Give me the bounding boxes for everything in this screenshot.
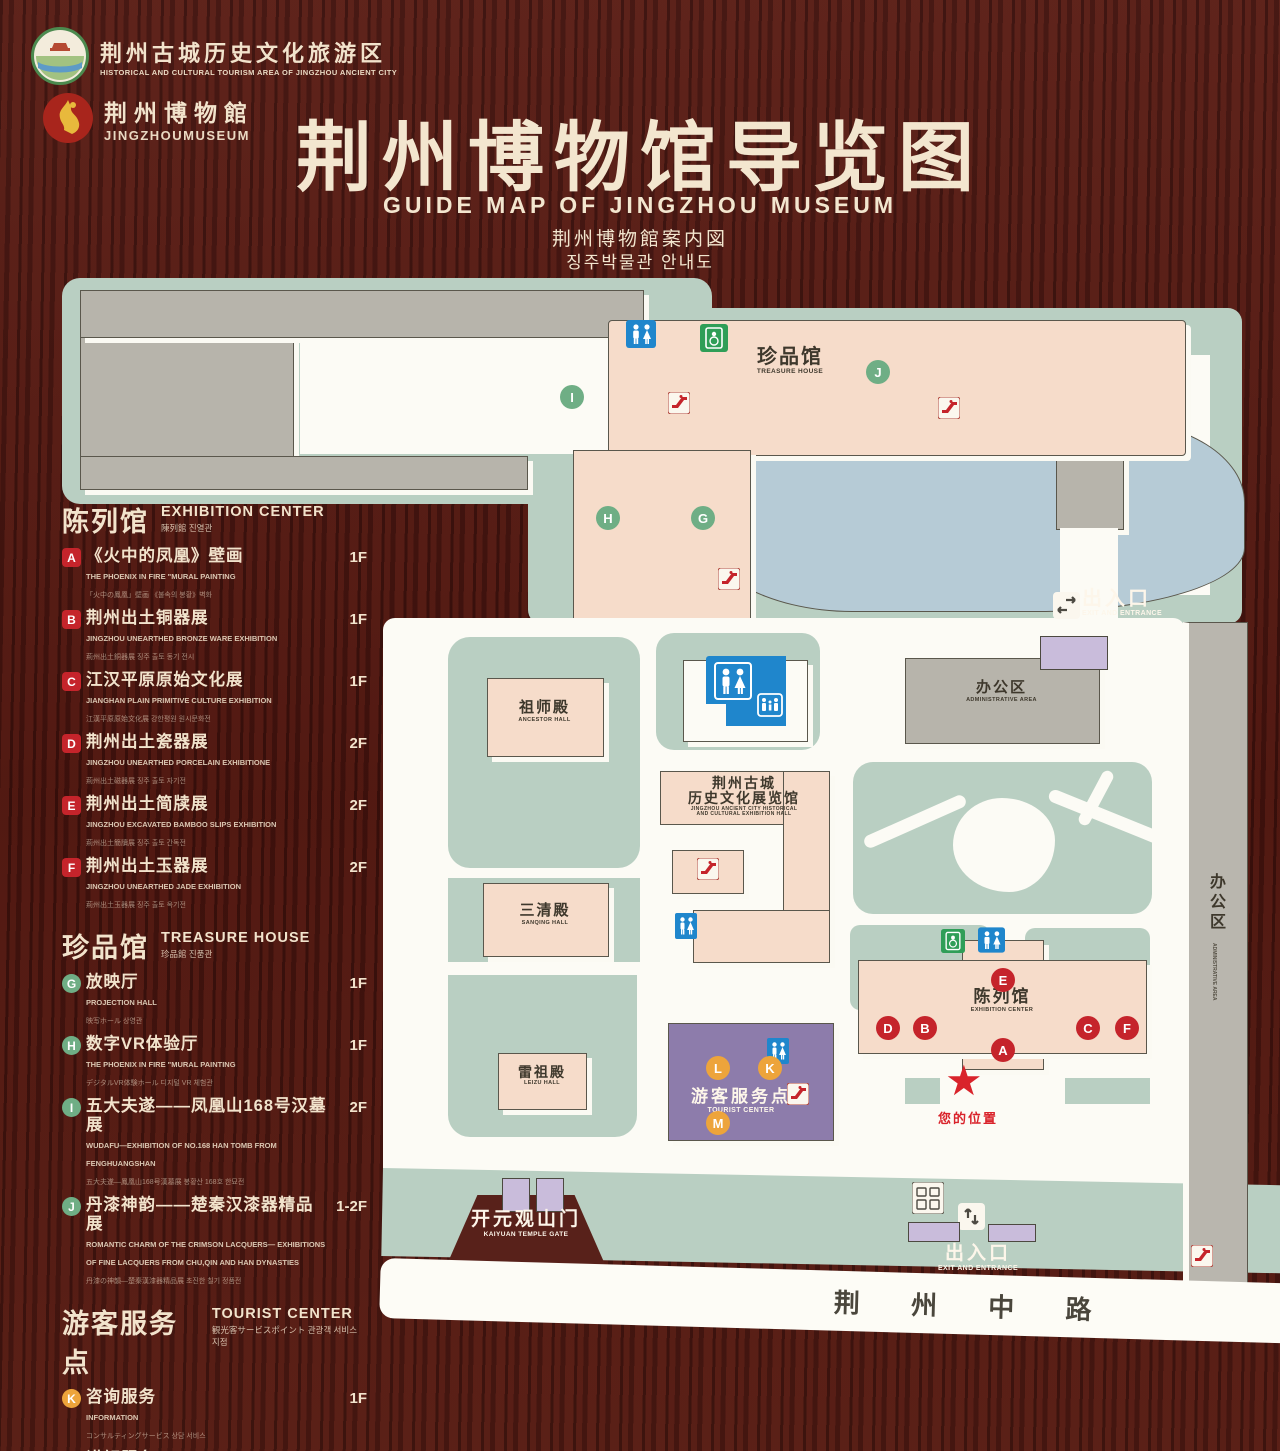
office-building-south-bar — [80, 456, 528, 490]
map-marker-K: K — [758, 1056, 782, 1080]
item-title-sub: デジタルVR体験ホール 디지털 VR 체험관 — [86, 1080, 213, 1087]
list-item: A 《火中的凤凰》壁画 THE PHOENIX IN FIRE "MURAL P… — [62, 547, 367, 602]
item-title-sub: 荊州出土銅器展 징주 출토 동기 전시 — [86, 654, 194, 661]
office-strip-east: 办公区 ADMINISTRATIVE AREA — [1183, 622, 1248, 1304]
map-marker-F: F — [1115, 1016, 1139, 1040]
item-title-en: THE PHOENIX IN FIRE "MURAL PAINTING — [86, 572, 236, 581]
ground-exh-sw — [905, 1078, 940, 1104]
ancestor-hall-label: 祖师殿 ANCESTOR HALL — [487, 700, 602, 723]
exit-entrance-icon — [958, 1203, 985, 1230]
item-title: 《火中的凤凰》壁画 — [86, 547, 244, 565]
map-marker-E: E — [991, 968, 1015, 992]
escalator-icon — [938, 397, 960, 419]
item-title-en: INFORMATION — [86, 1413, 138, 1422]
gate-post — [536, 1178, 564, 1212]
treasure-house-header: 珍品馆 TREASURE HOUSE 珍品館 진품관 — [62, 926, 367, 965]
letter-badge: C — [62, 672, 81, 691]
page-title-en: GUIDE MAP OF JINGZHOU MUSEUM — [0, 192, 1280, 219]
item-title-sub: 五大夫遂—鳳凰山168号漢墓展 봉황산 168호 한묘전 — [86, 1179, 244, 1186]
list-item: B 荆州出土铜器展 JINGZHOU UNEARTHED BRONZE WARE… — [62, 609, 367, 664]
exit-entrance-icon — [1053, 592, 1080, 619]
legend-sidebar: 陈列馆 EXHIBITION CENTER 陳列館 진열관 A 《火中的凤凰》壁… — [62, 500, 367, 1451]
map-marker-L: L — [706, 1056, 730, 1080]
letter-badge: B — [62, 610, 81, 629]
item-title-sub: 荊州出土磁器展 징주 출토 자기전 — [86, 778, 186, 785]
letter-badge: D — [62, 734, 81, 753]
tourist-center-building — [668, 1023, 834, 1141]
floor-label: 1F — [333, 547, 367, 566]
letter-badge: G — [62, 974, 81, 993]
floor-label: 1F — [333, 671, 367, 690]
item-title: 数字VR体验厅 — [86, 1035, 198, 1053]
letter-badge: I — [62, 1098, 81, 1117]
tourism-logo-en: HISTORICAL AND CULTURAL TOURISM AREA OF … — [100, 68, 397, 77]
item-title-en: THE PHOENIX IN FIRE "MURAL PAINTING — [86, 1060, 236, 1069]
restroom-icon — [978, 927, 1005, 953]
office-strip-label: 办公区 — [1203, 873, 1227, 933]
escalator-icon — [718, 568, 740, 590]
item-title-sub: コンサルティングサービス 상담 서비스 — [86, 1433, 206, 1440]
gate-structure — [1040, 636, 1108, 670]
item-title-sub: 江漢平原原始文化展 강한평원 원시문화전 — [86, 716, 211, 723]
item-title: 丹漆神韵——楚秦汉漆器精品展 — [86, 1196, 314, 1233]
escalator-icon — [668, 392, 690, 414]
ground-exh-se — [1065, 1078, 1150, 1104]
item-title: 荆州出土瓷器展 — [86, 733, 209, 751]
item-title-en: PROJECTION HALL — [86, 998, 157, 1007]
letter-badge: E — [62, 796, 81, 815]
item-title-sub: 荊州出土玉器展 징주 출토 옥기전 — [86, 902, 186, 909]
floor-label: 2F — [333, 795, 367, 814]
tourist-center-list: K 咨询服务 INFORMATION コンサルティングサービス 상담 서비스 1… — [62, 1388, 367, 1451]
letter-badge: K — [62, 1389, 81, 1408]
road: 荆 州 中 路 — [379, 1258, 1280, 1344]
exhibition-center-header: 陈列馆 EXHIBITION CENTER 陳列館 진열관 — [62, 500, 367, 539]
item-title-en: JINGZHOU UNEARTHED JADE EXHIBITION — [86, 882, 241, 891]
item-title-en: ROMANTIC CHARM OF THE CRIMSON LACQUERS— … — [86, 1240, 325, 1267]
item-title-en: JINGZHOU EXCAVATED BAMBOO SLIPS EXHIBITI… — [86, 820, 276, 829]
letter-badge: H — [62, 1036, 81, 1055]
floor-label: 1F — [333, 1035, 367, 1054]
map-marker-B: B — [913, 1016, 937, 1040]
tourism-emblem-icon — [30, 26, 90, 86]
gate-structure — [908, 1222, 960, 1242]
tourism-area-logo: 荆州古城历史文化旅游区 HISTORICAL AND CULTURAL TOUR… — [30, 26, 397, 86]
office-building-north-bar — [80, 290, 644, 338]
map-marker-C: C — [1076, 1016, 1100, 1040]
ancient-city-hall-south — [693, 910, 830, 963]
list-item: I 五大夫遂——凤凰山168号汉墓展 WUDAFU—EXHIBITION OF … — [62, 1097, 367, 1189]
item-title-sub: 荊州出土簡牘展 징주 출토 간독전 — [86, 840, 186, 847]
floor-label: 1-2F — [333, 1196, 367, 1215]
item-title-sub: 映写ホール 상영관 — [86, 1018, 142, 1025]
item-title-en: JIANGHAN PLAIN PRIMITIVE CULTURE EXHIBIT… — [86, 696, 272, 705]
tourist-center-header: 游客服务点 TOURIST CENTER 観光客サービスポイント 관광객 서비스… — [62, 1302, 367, 1380]
item-title-en: JINGZHOU UNEARTHED PORCELAIN EXHIBITIONE — [86, 758, 270, 767]
road-label: 荆 州 中 路 — [574, 1275, 1114, 1327]
tourist-center-label: 游客服务点 TOURIST CENTER — [666, 1088, 816, 1114]
gate-label: 开元观山门 KAIYUAN TEMPLE GATE — [445, 1210, 607, 1238]
item-title: 荆州出土铜器展 — [86, 609, 209, 627]
item-title: 荆州出土简牍展 — [86, 795, 209, 813]
office-strip-label-en: ADMINISTRATIVE AREA — [1211, 943, 1217, 1001]
treasure-house-south-wing — [573, 450, 751, 628]
exhibition-center-list: A 《火中的凤凰》壁画 THE PHOENIX IN FIRE "MURAL P… — [62, 547, 367, 912]
floor-label: 1F — [333, 1388, 367, 1407]
item-title-sub: 丹漆の神韻—楚秦漢漆器精品展 초진한 칠기 정품전 — [86, 1278, 241, 1285]
exit-bottom-label: 出入口 EXIT AND ENTRANCE — [918, 1244, 1038, 1273]
map-marker-G: G — [691, 506, 715, 530]
tourism-logo-cn: 荆州古城历史文化旅游区 — [100, 36, 397, 68]
letter-badge: J — [62, 1197, 81, 1216]
list-item: F 荆州出土玉器展 JINGZHOU UNEARTHED JADE EXHIBI… — [62, 857, 367, 912]
accessible-elevator-icon — [700, 324, 728, 352]
map-marker-H: H — [596, 506, 620, 530]
letter-badge: F — [62, 858, 81, 877]
garden-plaza — [953, 798, 1055, 892]
list-item: D 荆州出土瓷器展 JINGZHOU UNEARTHED PORCELAIN E… — [62, 733, 367, 788]
map-marker-I: I — [560, 385, 584, 409]
page-title: 荆州博物馆导览图 — [0, 96, 1280, 206]
map-marker-A: A — [991, 1038, 1015, 1062]
restroom-family-sign-icon — [706, 656, 786, 726]
list-item: K 咨询服务 INFORMATION コンサルティングサービス 상담 서비스 1… — [62, 1388, 367, 1443]
restroom-icon — [675, 913, 697, 939]
map-marker-J: J — [866, 360, 890, 384]
exit-top-label: 出入口 EXIT AND ENTRANCE — [1082, 588, 1202, 618]
floor-label: 2F — [333, 857, 367, 876]
list-item: C 江汉平原原始文化展 JIANGHAN PLAIN PRIMITIVE CUL… — [62, 671, 367, 726]
item-title: 五大夫遂——凤凰山168号汉墓展 — [86, 1097, 327, 1134]
floor-label: 1F — [333, 973, 367, 992]
escalator-icon — [1191, 1245, 1213, 1267]
list-item: G 放映厅 PROJECTION HALL 映写ホール 상영관 1F — [62, 973, 367, 1028]
map-marker-D: D — [876, 1016, 900, 1040]
guide-map-poster: { "header": { "tourism_logo": {"cn": "荆州… — [0, 0, 1280, 1451]
restroom-icon — [626, 320, 656, 348]
item-title: 江汉平原原始文化展 — [86, 671, 244, 689]
item-title: 荆州出土玉器展 — [86, 857, 209, 875]
letter-badge: A — [62, 548, 81, 567]
floor-label: 2F — [333, 1097, 367, 1116]
escalator-icon — [697, 858, 719, 880]
your-location-label: 您的位置 — [918, 1108, 1018, 1127]
map-marker-M: M — [706, 1111, 730, 1135]
page-title-jp: 荆州博物館案内図 — [0, 224, 1280, 251]
accessible-elevator-icon — [941, 929, 965, 953]
list-item: H 数字VR体验厅 THE PHOENIX IN FIRE "MURAL PAI… — [62, 1035, 367, 1090]
gate-post — [502, 1178, 530, 1212]
sanqing-hall-label: 三清殿 SANQING HALL — [483, 903, 607, 926]
admin-mid-label: 办公区 ADMINISTRATIVE AREA — [905, 680, 1098, 703]
gate-structure — [988, 1224, 1036, 1242]
treasure-house-list: G 放映厅 PROJECTION HALL 映写ホール 상영관 1F H 数字V… — [62, 973, 367, 1288]
list-item: E 荆州出土简牍展 JINGZHOU EXCAVATED BAMBOO SLIP… — [62, 795, 367, 850]
treasure-house-building — [608, 320, 1186, 456]
floor-label: 2F — [333, 733, 367, 752]
item-title-sub: 「火中の鳳凰」壁画 《불속의 봉황》벽화 — [86, 592, 212, 599]
item-title: 咨询服务 — [86, 1388, 156, 1406]
leizu-hall-label: 雷祖殿 LEIZU HALL — [492, 1065, 592, 1086]
floor-label: 1F — [333, 609, 367, 628]
item-title: 放映厅 — [86, 973, 139, 991]
list-item: J 丹漆神韵——楚秦汉漆器精品展 ROMANTIC CHARM OF THE C… — [62, 1196, 367, 1288]
item-title-en: WUDAFU—EXHIBITION OF NO.168 HAN TOMB FRO… — [86, 1141, 277, 1168]
ancient-city-hall-label: 荆州古城 历史文化展览馆 JINGZHOU ANCIENT CITY HISTO… — [658, 776, 830, 818]
item-title-en: JINGZHOU UNEARTHED BRONZE WARE EXHIBITIO… — [86, 634, 277, 643]
your-location-star-icon: ★ — [945, 1060, 983, 1102]
left-luggage-icon — [912, 1182, 944, 1214]
